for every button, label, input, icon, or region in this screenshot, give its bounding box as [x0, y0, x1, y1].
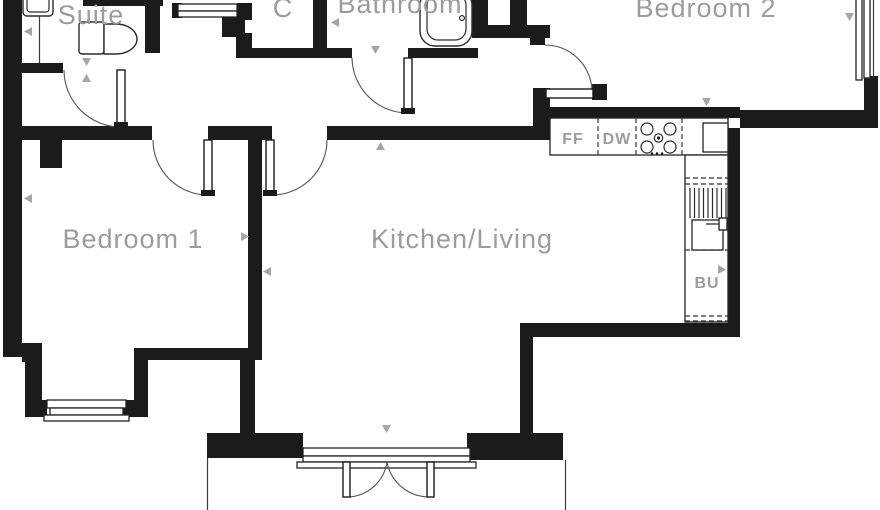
floor-plan: Suite C Bathroom Bedroom 2 Bedroom 1 Kit…	[0, 0, 880, 510]
dishwasher-label: DW	[603, 131, 632, 148]
dimension-arrow-icon	[331, 18, 339, 27]
sink-icon	[703, 123, 728, 152]
suite-label: Suite	[58, 0, 125, 30]
window-icon	[44, 400, 129, 421]
dimension-arrow-icon	[702, 98, 711, 106]
dimension-arrow-icon	[263, 267, 271, 276]
basin-icon	[23, 0, 53, 16]
bedroom1-label: Bedroom 1	[62, 224, 203, 254]
closet-label: C	[273, 0, 294, 23]
entrance-door-icon	[178, 4, 237, 17]
door-swing-icon	[545, 45, 593, 98]
door-swing-icon	[64, 70, 128, 128]
bedroom2-label: Bedroom 2	[635, 0, 776, 23]
window-icon	[856, 0, 874, 80]
dimension-arrow-icon	[376, 142, 385, 150]
dimension-arrow-icon	[24, 27, 32, 36]
dimension-arrow-icon	[845, 13, 854, 21]
dimension-arrow-icon	[382, 425, 391, 433]
door-swing-icon	[263, 140, 327, 196]
dimension-arrow-icon	[371, 46, 380, 54]
floor-plan-page: Suite C Bathroom Bedroom 2 Bedroom 1 Kit…	[0, 0, 880, 510]
dimension-arrow-icon	[241, 232, 249, 241]
dimension-arrow-icon	[82, 74, 91, 82]
kitchen-living-label: Kitchen/Living	[371, 224, 553, 254]
door-swing-icon	[352, 58, 415, 114]
fridge-freezer-label: FF	[562, 131, 584, 148]
dimension-arrow-icon	[24, 194, 32, 203]
doors	[64, 45, 593, 497]
dimension-arrow-icon	[82, 58, 91, 66]
door-swing-icon	[153, 140, 215, 196]
bathroom-label: Bathroom	[337, 0, 462, 19]
boiler-unit-label: BU	[694, 275, 719, 292]
sink-bowl-icon	[692, 218, 727, 250]
